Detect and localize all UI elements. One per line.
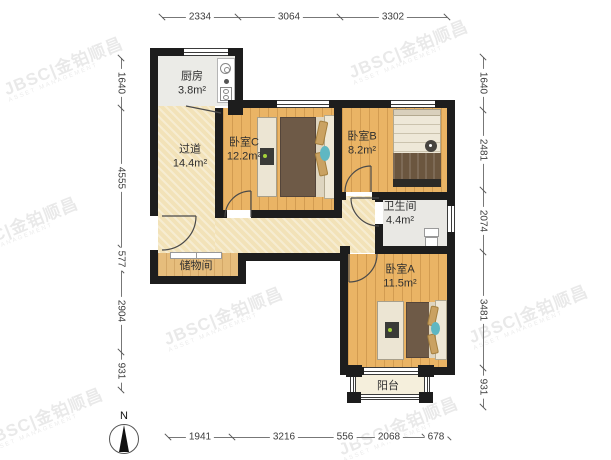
dim-left-1: 1640 [116, 69, 127, 97]
dim-top-1: 2334 [186, 12, 214, 23]
dim-left-3: 577 [116, 248, 127, 271]
floor-plan: JBSC|金铂顺昌ASSET MANAGEMENT JBSC|金铂顺昌ASSET… [0, 0, 611, 460]
dim-top-3: 3302 [379, 12, 407, 23]
dim-right-4: 3481 [478, 296, 489, 324]
room-label-bedroomC: 卧室C12.2m² [227, 136, 261, 165]
door-swings [0, 0, 611, 460]
room-label-kitchen: 厨房3.8m² [178, 70, 206, 99]
dim-top-2: 3064 [275, 12, 303, 23]
dim-right-3: 2074 [478, 207, 489, 235]
compass-north-label: N [120, 410, 128, 422]
dim-bottom-1: 1941 [186, 432, 214, 443]
room-label-hallway: 过道14.4m² [173, 143, 207, 172]
dim-left-4: 2904 [116, 297, 127, 325]
room-label-balcony: 阳台 [377, 379, 399, 393]
room-label-bedroomA: 卧室A11.5m² [383, 263, 416, 292]
dim-bottom-5: 678 [425, 432, 448, 443]
dim-right-5: 931 [478, 376, 489, 399]
dim-bottom-4: 2068 [375, 432, 403, 443]
room-label-bedroomB: 卧室B8.2m² [347, 130, 376, 159]
dim-left-5: 931 [116, 360, 127, 383]
dim-left-2: 4555 [116, 164, 127, 192]
room-label-bathroom: 卫生间4.4m² [384, 200, 417, 229]
dim-right-1: 1640 [478, 69, 489, 97]
dim-bottom-2: 3216 [270, 432, 298, 443]
compass-needle-icon [119, 425, 129, 452]
dim-right-2: 2481 [478, 136, 489, 164]
dim-bottom-3: 556 [334, 432, 357, 443]
room-label-storage: 储物间 [180, 259, 213, 273]
